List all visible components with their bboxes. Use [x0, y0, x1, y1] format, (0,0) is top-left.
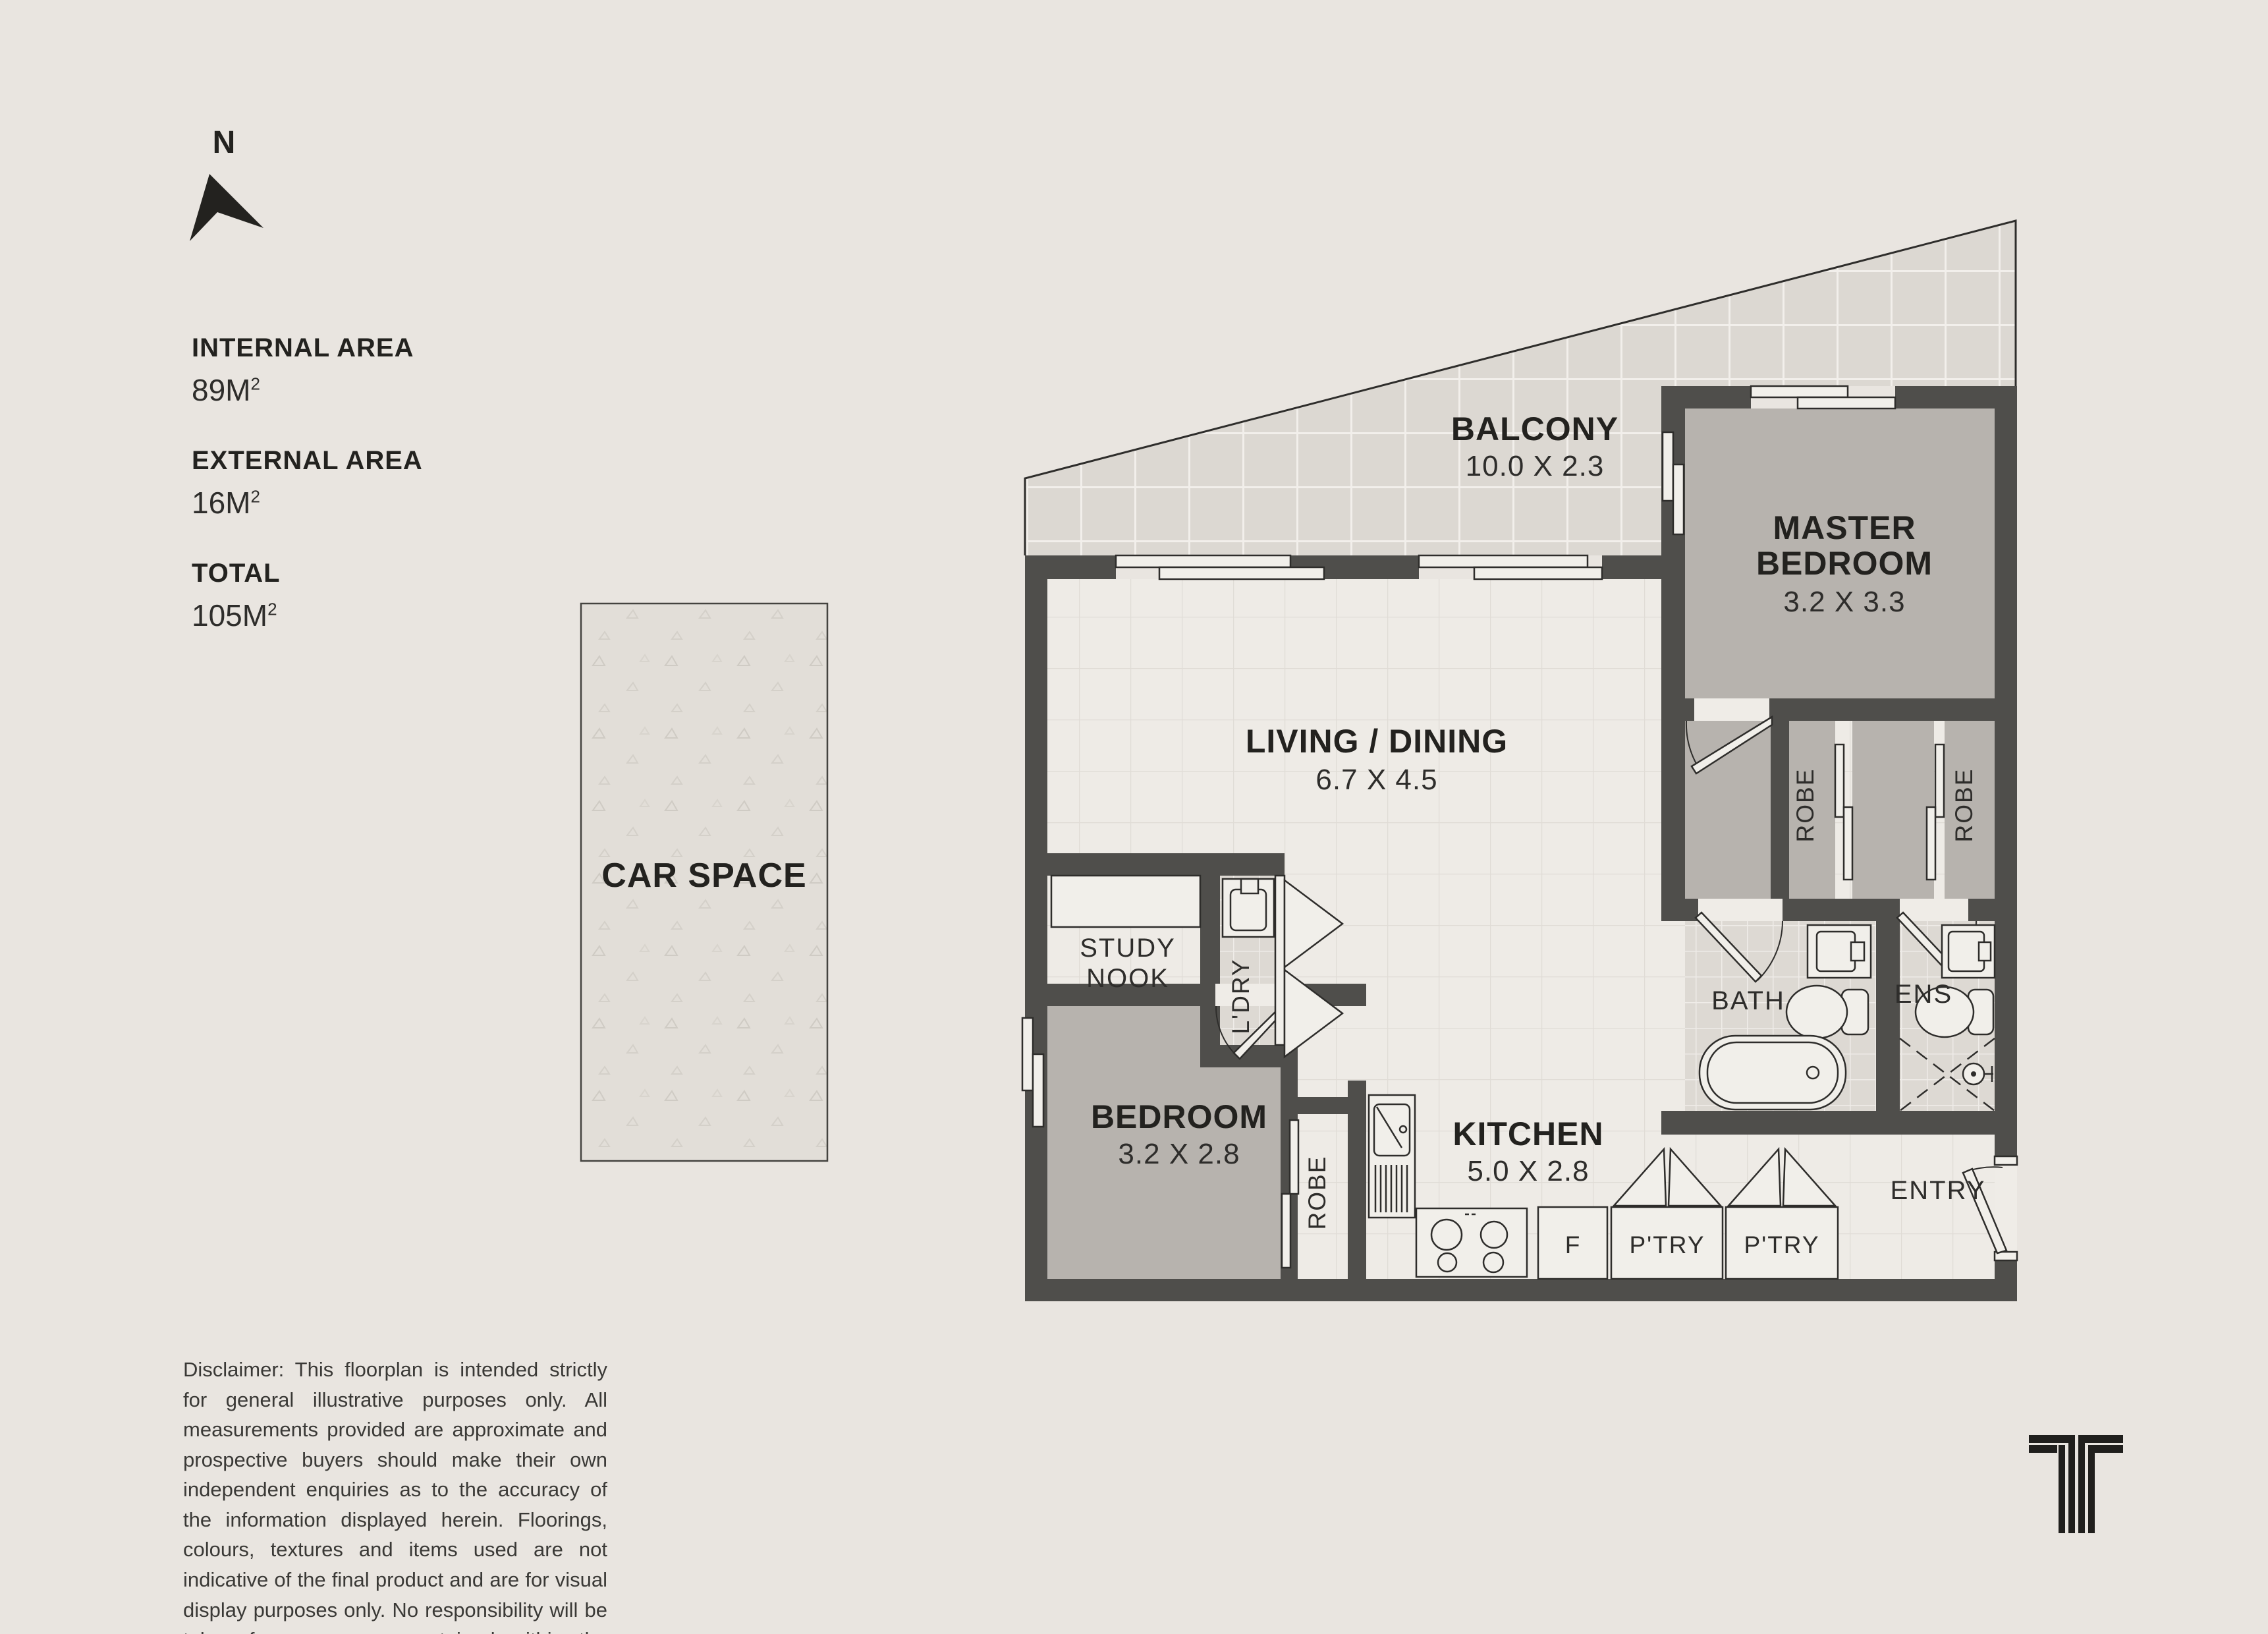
car-space: CAR SPACE	[581, 604, 827, 1161]
robe-label-master-left: ROBE	[1792, 768, 1819, 843]
robe-label-bedroom: ROBE	[1304, 1156, 1331, 1230]
living-dims: 6.7 X 4.5	[1315, 764, 1437, 796]
study-label-line2: NOOK	[1086, 964, 1169, 993]
area-summary: INTERNAL AREA 89M2 EXTERNAL AREA 16M2 TO…	[192, 333, 423, 671]
total-area-label: TOTAL	[192, 559, 423, 588]
balcony-label: BALCONY	[1451, 410, 1618, 447]
cooktop-icon	[1416, 1208, 1527, 1277]
tt-logo-icon	[2029, 1435, 2123, 1533]
master-label-line1: MASTER	[1773, 509, 1916, 546]
ens-label: ENS	[1895, 980, 1952, 1009]
bedroom-label: BEDROOM	[1091, 1098, 1267, 1135]
laundry-label: L'DRY	[1227, 958, 1254, 1034]
entry-label: ENTRY	[1891, 1176, 1986, 1205]
washing-machine-icon	[1223, 879, 1274, 937]
internal-area-label: INTERNAL AREA	[192, 333, 423, 363]
internal-area-value: 89M2	[192, 372, 423, 408]
disclaimer-text: Disclaimer: This floorplan is intended s…	[183, 1355, 607, 1634]
car-space-label: CAR SPACE	[601, 857, 806, 895]
external-area-label: EXTERNAL AREA	[192, 446, 423, 476]
total-area-value: 105M2	[192, 598, 423, 633]
fridge-label: F	[1565, 1231, 1582, 1258]
toilet-icon	[1786, 986, 1868, 1038]
floorplan-page: N CAR SPACE	[0, 0, 2268, 1634]
pantry-label-2: P'TRY	[1744, 1231, 1819, 1258]
external-area-value: 16M2	[192, 485, 423, 521]
living-label: LIVING / DINING	[1246, 723, 1508, 760]
master-dims: 3.2 X 3.3	[1783, 586, 1905, 618]
bath-label: BATH	[1711, 986, 1785, 1015]
robe-walkway-floor	[1852, 721, 1934, 899]
sink-icon	[1369, 1095, 1415, 1218]
master-label-line2: BEDROOM	[1756, 545, 1933, 582]
vanity-icon	[1808, 925, 1871, 978]
desk	[1051, 876, 1200, 927]
balcony-dims: 10.0 X 2.3	[1466, 450, 1605, 482]
disclaimer: Disclaimer: This floorplan is intended s…	[183, 1355, 607, 1634]
north-label: N	[213, 125, 236, 160]
pantry-label-1: P'TRY	[1629, 1231, 1705, 1258]
kitchen-dims: 5.0 X 2.8	[1467, 1155, 1589, 1187]
robe-label-master-right: ROBE	[1950, 768, 1978, 843]
kitchen-label: KITCHEN	[1452, 1115, 1603, 1152]
study-label-line1: STUDY	[1080, 934, 1176, 963]
bathtub-icon	[1700, 1036, 1846, 1110]
bedroom-dims: 3.2 X 2.8	[1118, 1138, 1240, 1170]
north-arrow-icon: N	[190, 125, 263, 241]
vanity-icon	[1942, 925, 1995, 978]
